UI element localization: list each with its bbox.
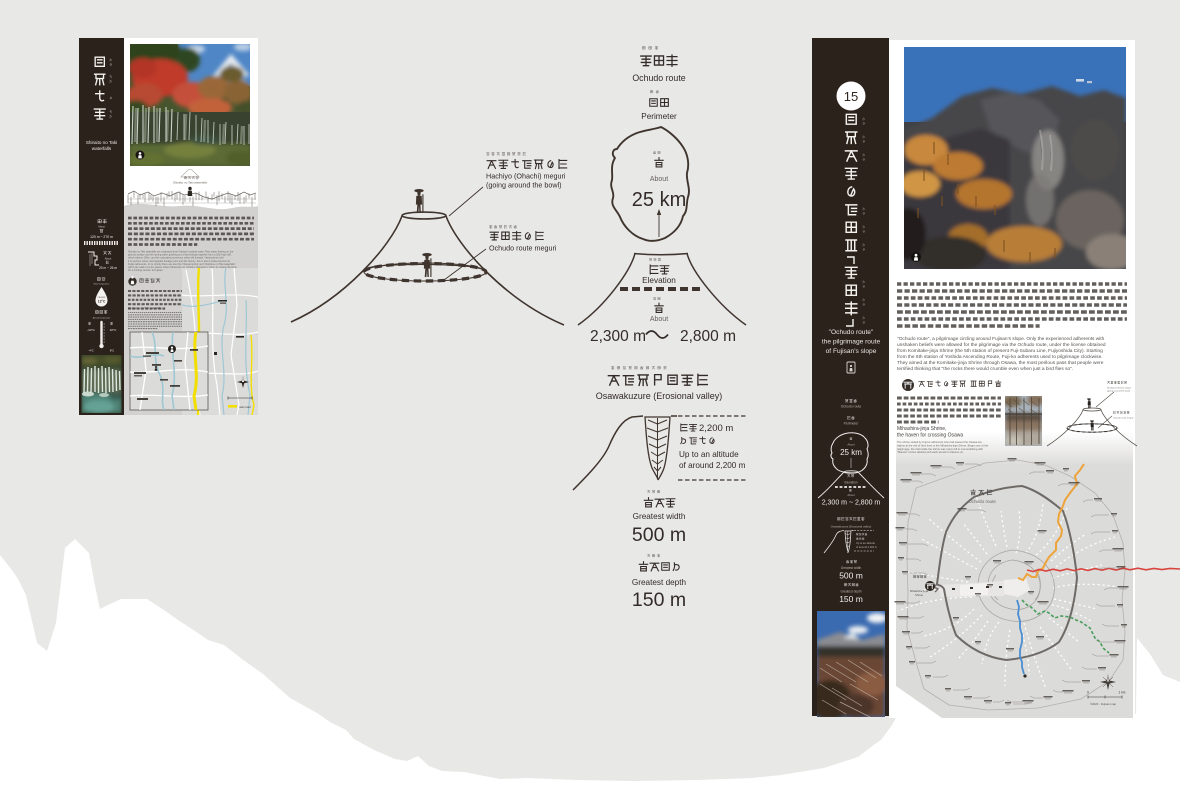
svg-text:Shiraito no Taki waterfalls: Shiraito no Taki waterfalls <box>173 181 207 185</box>
svg-text:500 m: 500 m <box>632 524 686 546</box>
svg-text:-10°C: -10°C <box>87 328 96 332</box>
svg-text:About: About <box>105 258 112 261</box>
svg-text:(going around the bowl): (going around the bowl) <box>486 181 562 190</box>
svg-text:main road: main road <box>239 405 251 409</box>
svg-text:terrified thinking that "the r: terrified thinking that "the rocks there… <box>897 366 1073 372</box>
svg-text:Up to an altitude: Up to an altitude <box>679 450 739 459</box>
svg-text:1 km: 1 km <box>1119 691 1126 695</box>
svg-text:Otodome no Taki waterfalls: Otodome no Taki waterfalls <box>128 306 162 310</box>
svg-text:150 m: 150 m <box>632 589 686 611</box>
svg-text:Elevation: Elevation <box>844 481 857 485</box>
svg-text:of Fujisan's slope: of Fujisan's slope <box>826 348 877 355</box>
svg-text:pilgrimage, the trail inside t: pilgrimage, the trail inside the shrine … <box>897 447 983 451</box>
svg-text:Ochudo route: Ochudo route <box>841 405 862 409</box>
svg-text:20 m ~ 26 m: 20 m ~ 26 m <box>99 266 117 270</box>
svg-text:Shrine: Shrine <box>915 593 924 597</box>
svg-text:Greatest depth: Greatest depth <box>840 590 861 594</box>
svg-text:Hachiyo (Ohachi) meguri: Hachiyo (Ohachi) meguri <box>1107 387 1132 390</box>
svg-text:of around 2,200 m: of around 2,200 m <box>856 545 877 549</box>
svg-text:Greatest depth: Greatest depth <box>632 578 687 587</box>
svg-text:Water temperature: Water temperature <box>94 283 110 286</box>
svg-text:the haven for crossing Osawa: the haven for crossing Osawa <box>897 433 963 439</box>
svg-text:Perimeter: Perimeter <box>844 422 860 426</box>
svg-text:150 m: 150 m <box>839 594 863 604</box>
svg-text:2,300 m: 2,300 m <box>590 328 646 345</box>
svg-text:15: 15 <box>844 89 858 104</box>
svg-text:(going around the bowl): (going around the bowl) <box>1107 390 1130 393</box>
svg-text:-4°C: -4°C <box>88 349 93 353</box>
svg-text:from Komitake-jinja Shrine (th: from Komitake-jinja Shrine (the 5th stat… <box>897 348 1103 354</box>
svg-text:8°C: 8°C <box>110 349 114 353</box>
svg-text:120 m ~ 270 m: 120 m ~ 270 m <box>90 235 113 239</box>
svg-text:Ochudo route: Ochudo route <box>968 499 996 504</box>
svg-text:"Ochudo route": "Ochudo route" <box>829 329 874 336</box>
svg-text:Greatest width: Greatest width <box>841 566 862 570</box>
svg-text:Osawakuzure (Erosional valley): Osawakuzure (Erosional valley) <box>596 391 723 401</box>
svg-text:of around 2,200 m: of around 2,200 m <box>679 461 746 470</box>
svg-text:About: About <box>847 443 855 447</box>
svg-text:Osawakuzure (Erosional valley): Osawakuzure (Erosional valley) <box>831 525 872 529</box>
svg-text:Ochudo route meguri: Ochudo route meguri <box>1113 417 1134 420</box>
svg-text:10°C: 10°C <box>110 328 118 332</box>
svg-text:unshaken beliefs were allowed: unshaken beliefs were allowed for the pi… <box>897 342 1106 348</box>
svg-text:The shrine visited by Fuji-ko: The shrine visited by Fuji-ko adherents … <box>897 440 983 444</box>
svg-text:Up to an altitude: Up to an altitude <box>856 541 875 545</box>
svg-text:Greatest width: Greatest width <box>633 512 686 521</box>
svg-text:Ochudo route meguri: Ochudo route meguri <box>489 244 557 253</box>
svg-text:Elevation: Elevation <box>642 276 676 285</box>
svg-text:Hachiyo (Ohachi) meguri: Hachiyo (Ohachi) meguri <box>486 172 566 181</box>
svg-text:for a hunting session at Fujis: for a hunting session at Fujisan. <box>128 269 164 272</box>
svg-text:12°C: 12°C <box>98 300 106 304</box>
svg-text:0: 0 <box>1087 691 1089 695</box>
svg-text:2,800 m: 2,800 m <box>680 328 736 345</box>
svg-text:Perimeter: Perimeter <box>641 112 677 121</box>
svg-text:About: About <box>650 176 668 183</box>
svg-text:2,200 m: 2,200 m <box>699 423 733 434</box>
svg-text:Annual temperature: Annual temperature <box>93 317 111 320</box>
svg-text:2,300 m ~ 2,800 m: 2,300 m ~ 2,800 m <box>822 500 881 507</box>
svg-text:©2020 · Fujisan map: ©2020 · Fujisan map <box>1090 702 1116 706</box>
svg-text:waterfalls: waterfalls <box>92 146 112 151</box>
svg-text:hajime at the risk of their li: hajime at the risk of their lives is the… <box>897 443 989 447</box>
svg-text:They aimed at the Komitake-jin: They aimed at the Komitake-jinja Shrine … <box>897 360 1104 366</box>
svg-text:"Ochudo route", a pilgrimage c: "Ochudo route", a pilgrimage circling ar… <box>897 336 1105 342</box>
svg-text:500 m: 500 m <box>839 571 863 581</box>
svg-text:About: About <box>650 316 668 323</box>
svg-text:Ochudo route: Ochudo route <box>632 73 685 83</box>
svg-text:Shiraito no Taki: Shiraito no Taki <box>86 140 117 145</box>
svg-text:the pilgrimage route: the pilgrimage route <box>822 339 881 346</box>
svg-text:25 km: 25 km <box>840 448 862 457</box>
svg-text:"Maneki" (votive tablets) with: "Maneki" (votive tablets) with each asce… <box>897 450 964 454</box>
svg-text:About: About <box>98 225 105 229</box>
svg-text:25 km: 25 km <box>632 189 686 211</box>
svg-text:About: About <box>847 493 855 497</box>
svg-text:from the 6th station of Yoshid: from the 6th station of Yoshida Ascendin… <box>897 354 1103 360</box>
svg-text:Mihashira-jinja Shrine,: Mihashira-jinja Shrine, <box>897 426 946 432</box>
